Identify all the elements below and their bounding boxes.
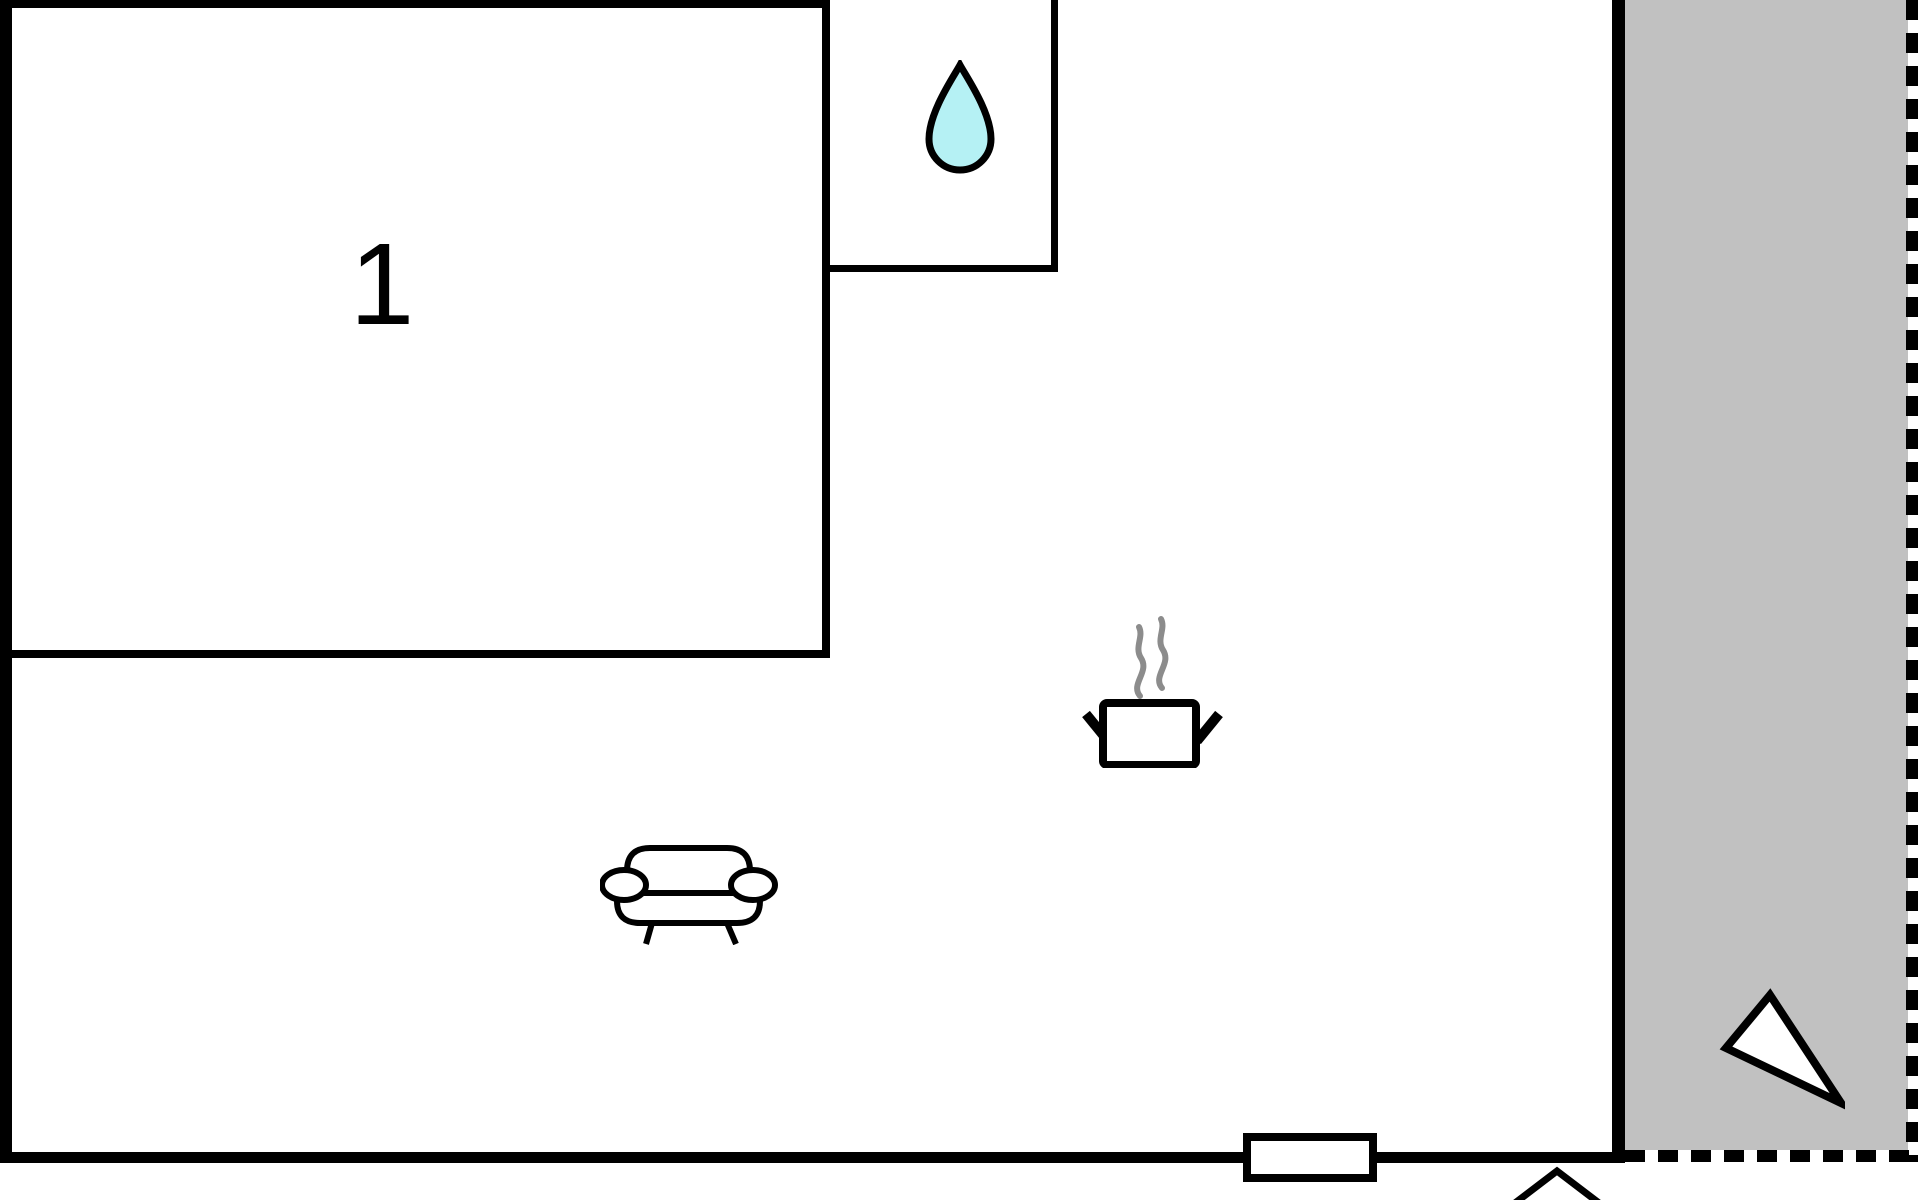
- room1-label: 1: [350, 226, 415, 342]
- outer-wall-bottom: [0, 1152, 1625, 1163]
- bathroom-wall-right: [1051, 0, 1058, 272]
- terrace-wall: [1612, 0, 1625, 1162]
- outer-wall-left: [0, 0, 12, 1163]
- terrace-dashed-border-right: [1906, 0, 1918, 1162]
- door-swing-icon: [1505, 1163, 1615, 1200]
- bathroom-wall-bottom: [822, 265, 1058, 272]
- interior-wall-vertical: [822, 0, 830, 658]
- floor-plan: 1: [0, 0, 1920, 1200]
- room1-bottom-wall: [0, 650, 830, 658]
- sofa-icon: [600, 845, 780, 945]
- terrace-area: [1625, 0, 1908, 1150]
- terrace-dashed-border-bottom: [1625, 1150, 1920, 1162]
- north-arrow-icon: [1715, 985, 1845, 1115]
- water-drop-icon: [920, 60, 1000, 175]
- outer-wall-top: [0, 0, 830, 8]
- window-marker: [1243, 1133, 1377, 1182]
- cooking-pot-icon: [1080, 608, 1225, 768]
